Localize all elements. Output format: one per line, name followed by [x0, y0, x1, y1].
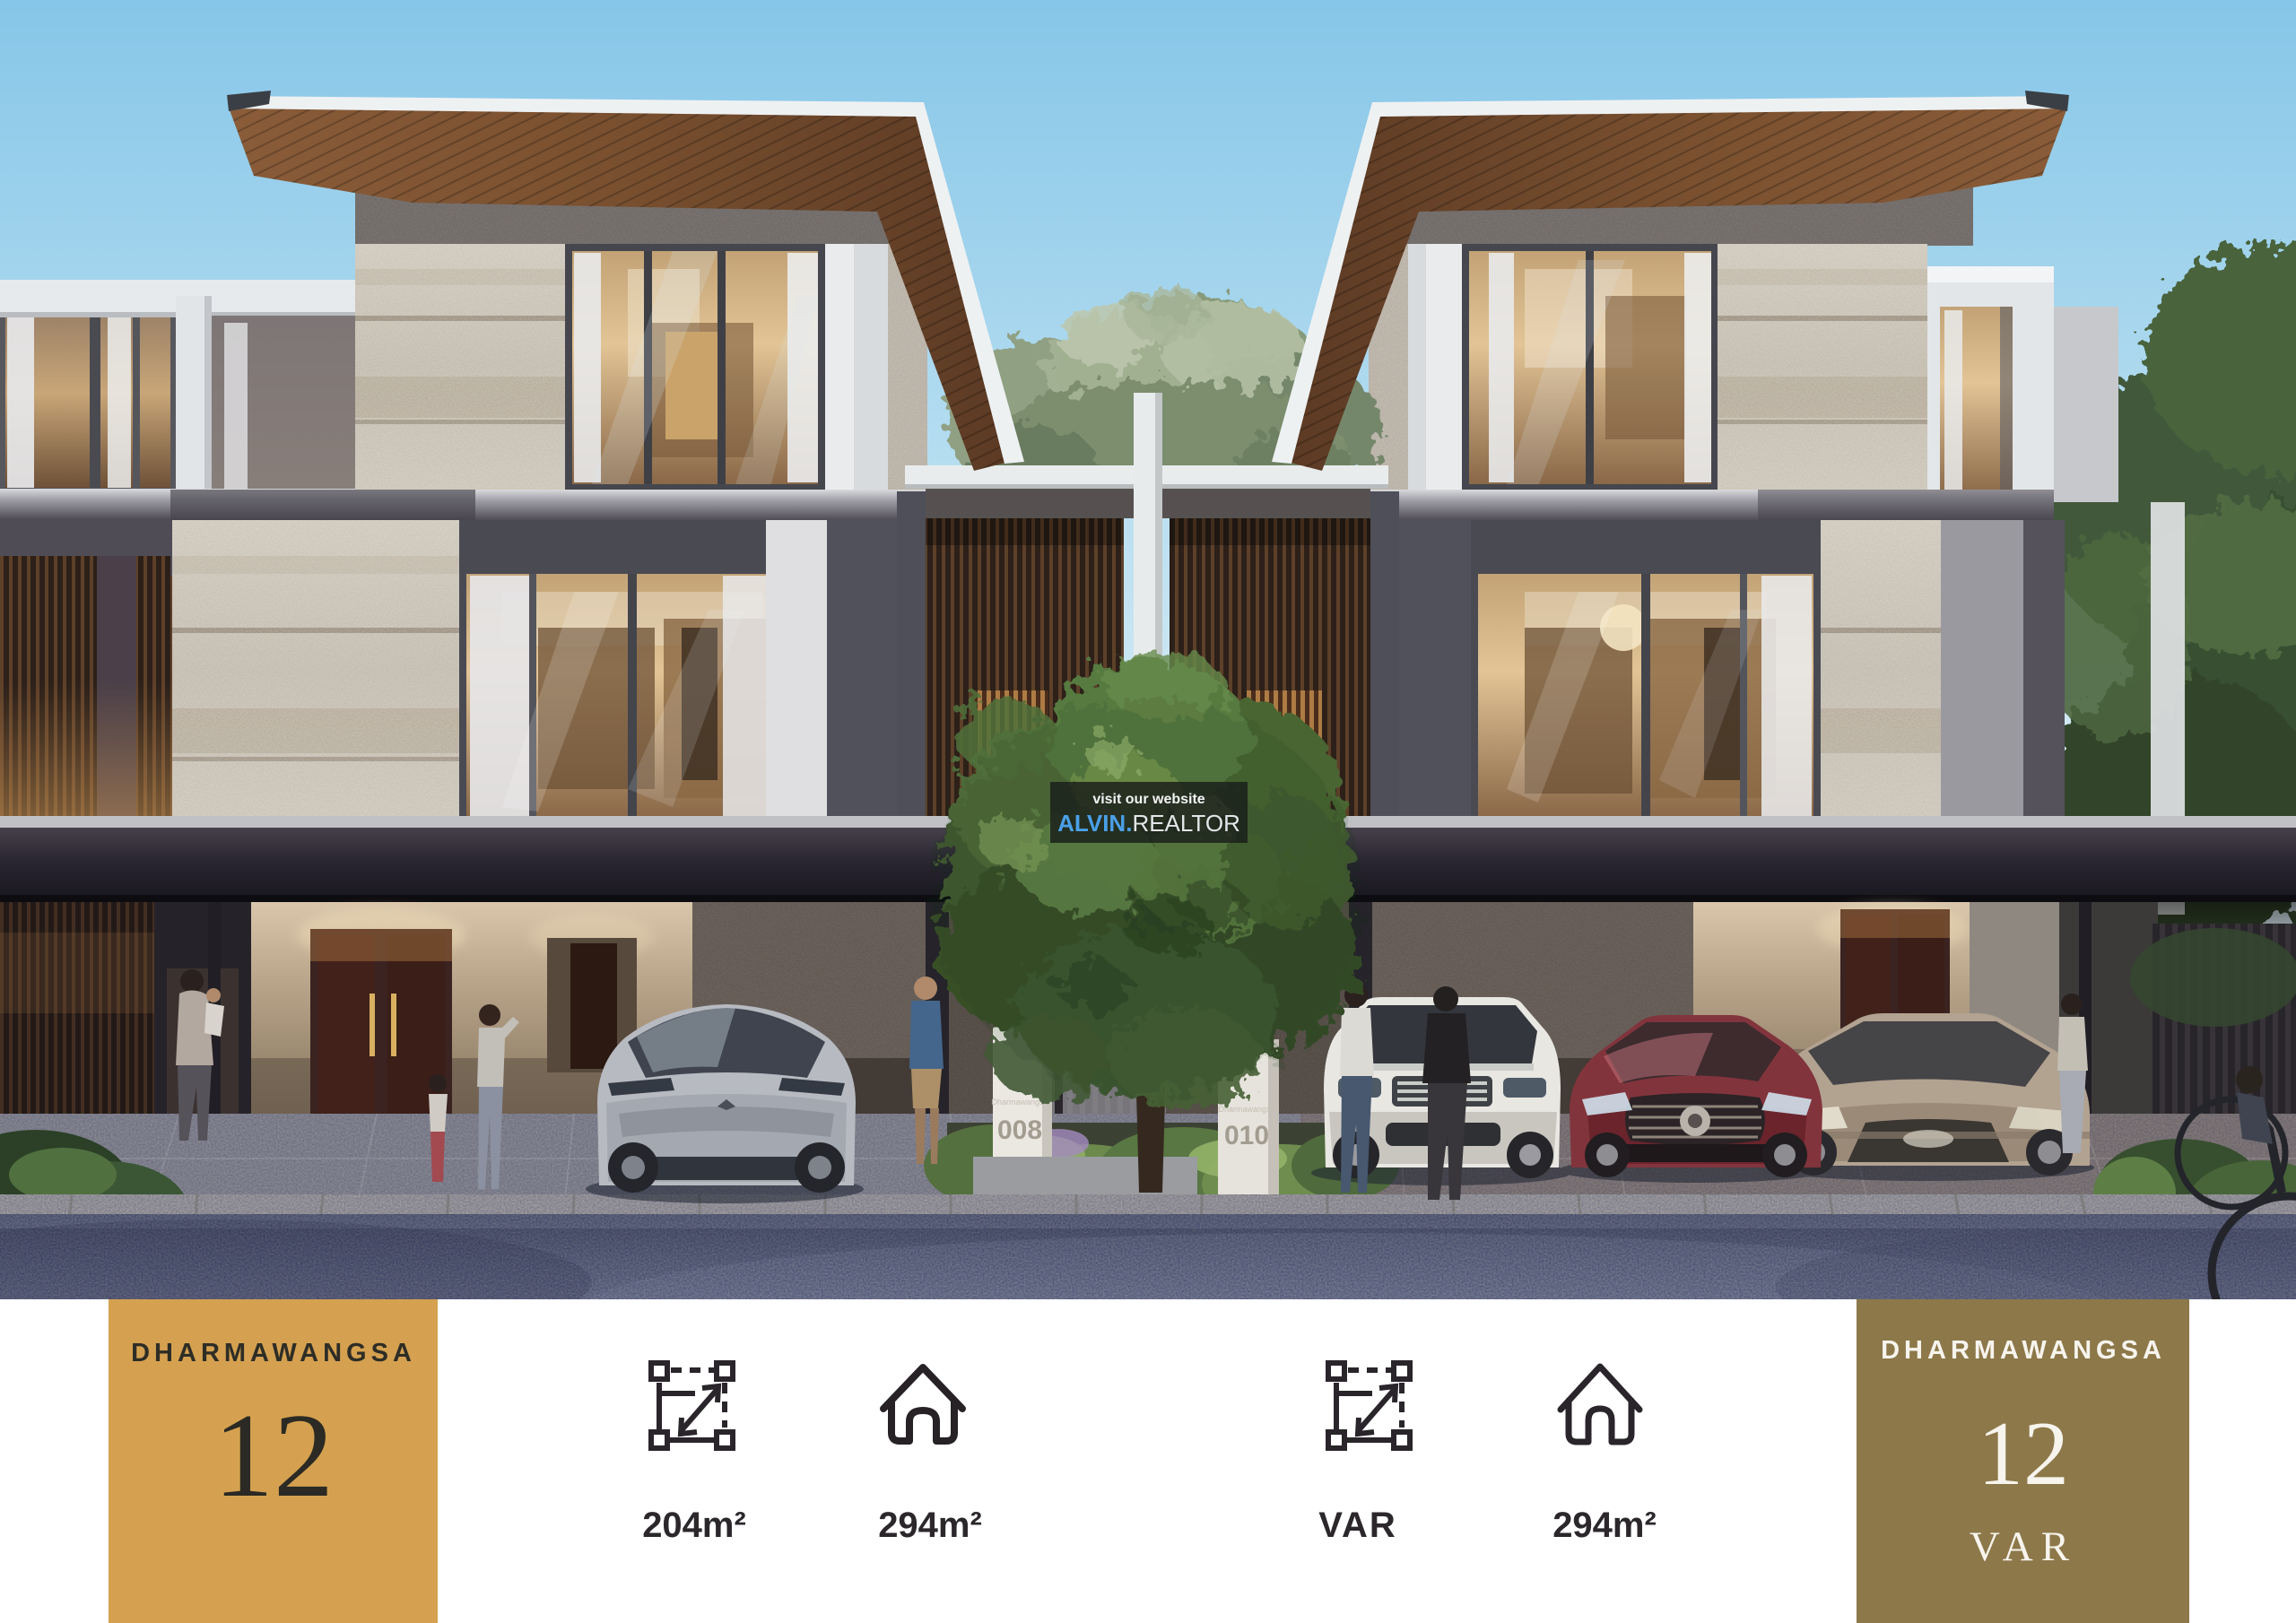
svg-text:294m²: 294m²	[878, 1506, 982, 1545]
svg-text:visit our website: visit our website	[1092, 792, 1205, 807]
svg-text:204m²: 204m²	[642, 1506, 746, 1545]
svg-text:010: 010	[1224, 1121, 1269, 1150]
svg-text:12: 12	[1978, 1403, 2069, 1505]
svg-text:12: 12	[213, 1389, 334, 1522]
svg-text:VAR: VAR	[1318, 1506, 1396, 1545]
svg-text:294m²: 294m²	[1552, 1506, 1657, 1545]
svg-text:Dharmawangsa: Dharmawangsa	[1218, 1105, 1274, 1114]
svg-text:DHARMAWANGSA: DHARMAWANGSA	[131, 1339, 416, 1367]
svg-text:008: 008	[997, 1115, 1042, 1145]
svg-text:DHARMAWANGSA: DHARMAWANGSA	[1881, 1336, 2166, 1365]
svg-text:ALVIN.REALTOR: ALVIN.REALTOR	[1057, 810, 1240, 837]
svg-text:Dharmawangsa: Dharmawangsa	[991, 1098, 1048, 1107]
svg-text:VAR: VAR	[1970, 1523, 2077, 1570]
